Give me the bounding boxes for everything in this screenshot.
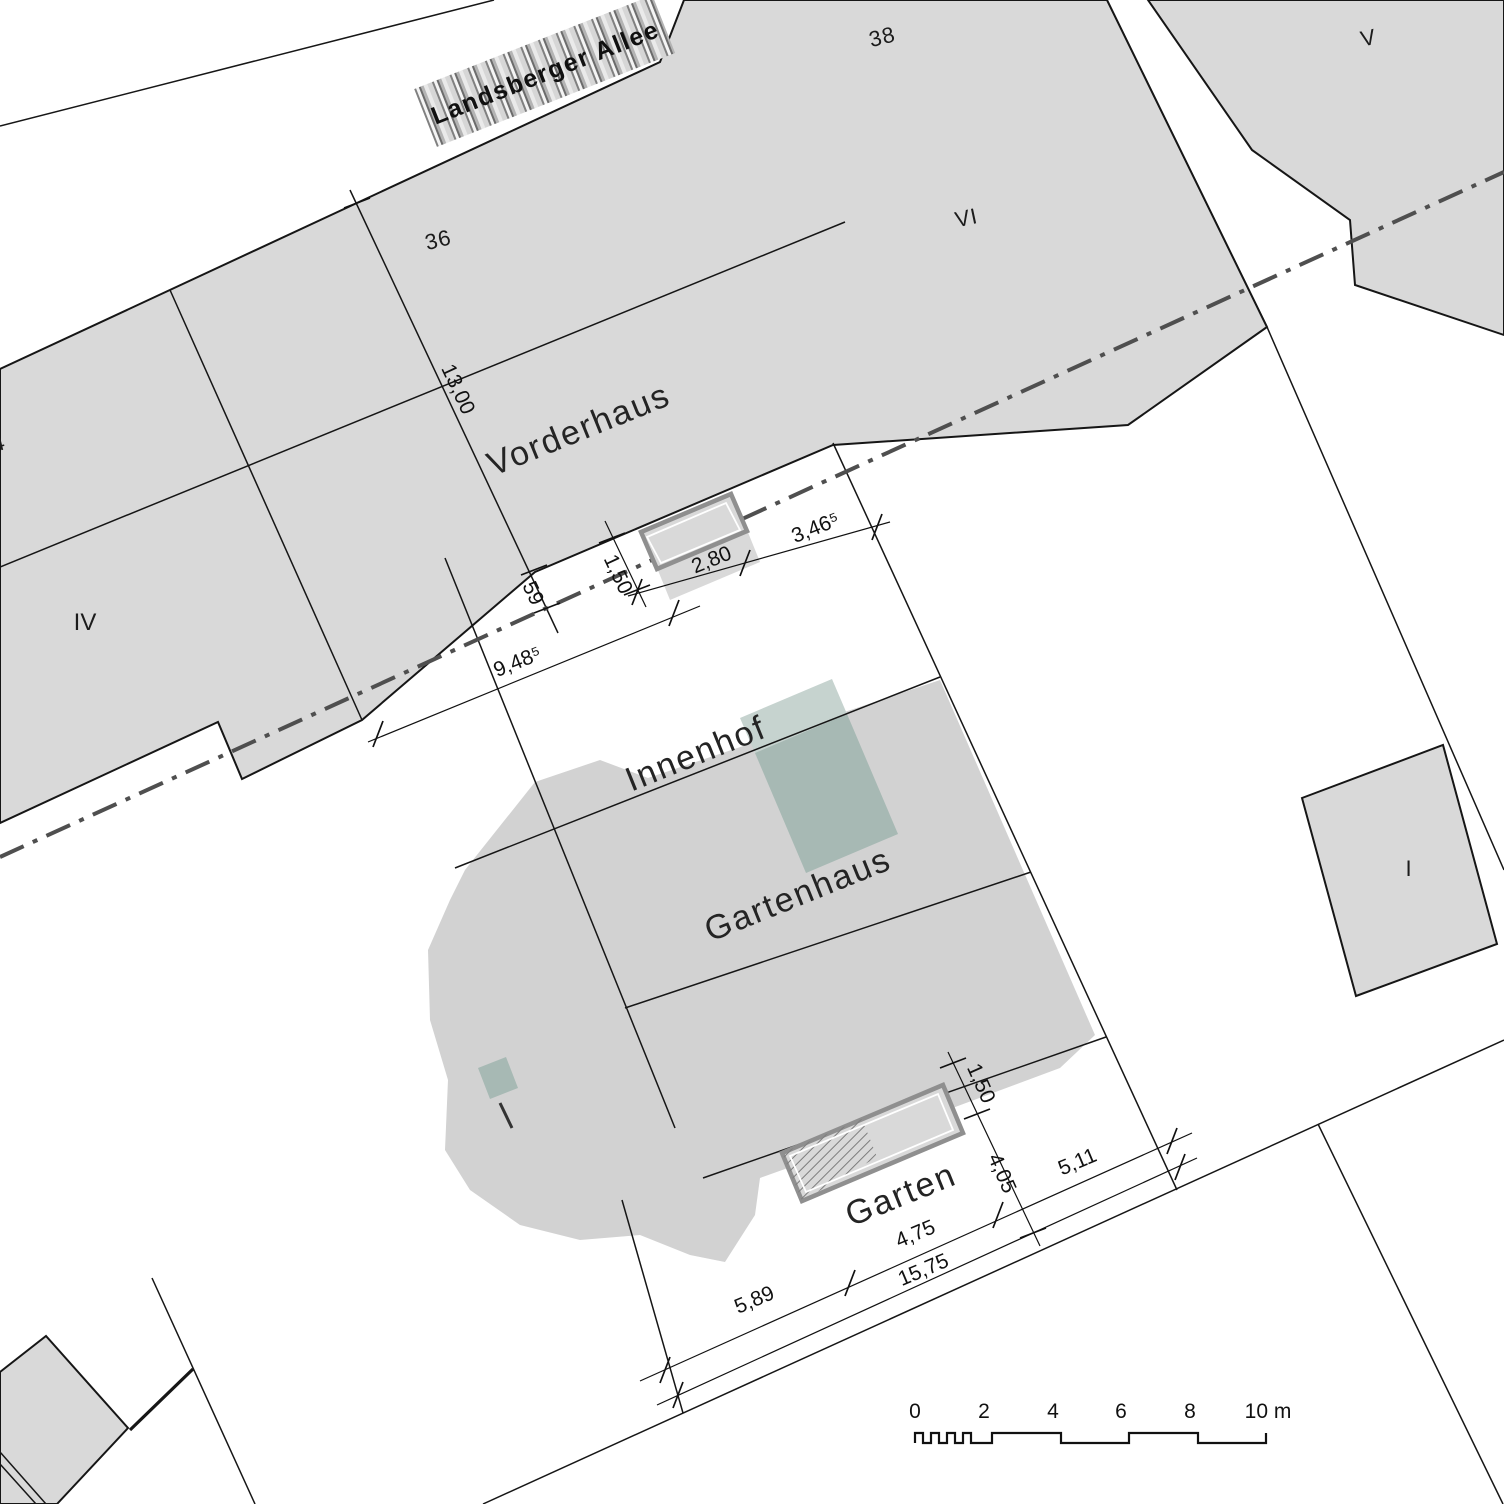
boundary-southwest bbox=[152, 1278, 255, 1504]
scale-tick-8: 8 bbox=[1184, 1400, 1196, 1423]
site-plan: 13,00 59 1,50 2,80 3,46⁵ 9,48⁵ 1,50 4,05… bbox=[0, 0, 1504, 1504]
dim-label-9-48-5: 9,48⁵ bbox=[490, 642, 545, 682]
scale-tick-10m: 10 m bbox=[1245, 1400, 1292, 1423]
scale-tick-4: 4 bbox=[1047, 1400, 1059, 1423]
dim-label-4-05: 4,05 bbox=[983, 1150, 1021, 1197]
dim-label-4-75: 4,75 bbox=[892, 1215, 939, 1252]
parcel-label-i: I bbox=[1405, 856, 1412, 881]
scale-tick-2: 2 bbox=[978, 1400, 990, 1423]
parcel-mass-i bbox=[1302, 745, 1497, 996]
scale-bar: 0 2 4 6 8 10 m bbox=[909, 1400, 1291, 1443]
parcel-mass-bottom-left bbox=[0, 1336, 128, 1504]
scale-bar-shape bbox=[915, 1433, 1266, 1443]
scale-tick-6: 6 bbox=[1115, 1400, 1127, 1423]
boundary-southeast bbox=[1318, 1124, 1503, 1504]
parcel-label-iv: IV bbox=[74, 609, 97, 636]
dim-label-5-11: 5,11 bbox=[1055, 1144, 1100, 1181]
dim-label-1-50-court: 1,50 bbox=[599, 551, 637, 598]
boundary-southwest-spur bbox=[130, 1369, 193, 1430]
street-edge-line bbox=[0, 0, 494, 126]
site-plan-canvas: 13,00 59 1,50 2,80 3,46⁵ 9,48⁵ 1,50 4,05… bbox=[0, 0, 1504, 1504]
dim-label-15-75: 15,75 bbox=[895, 1249, 952, 1291]
scale-tick-0: 0 bbox=[909, 1400, 921, 1423]
dim-label-3-46-5: 3,46⁵ bbox=[788, 508, 843, 548]
dim-label-5-89: 5,89 bbox=[731, 1281, 778, 1318]
